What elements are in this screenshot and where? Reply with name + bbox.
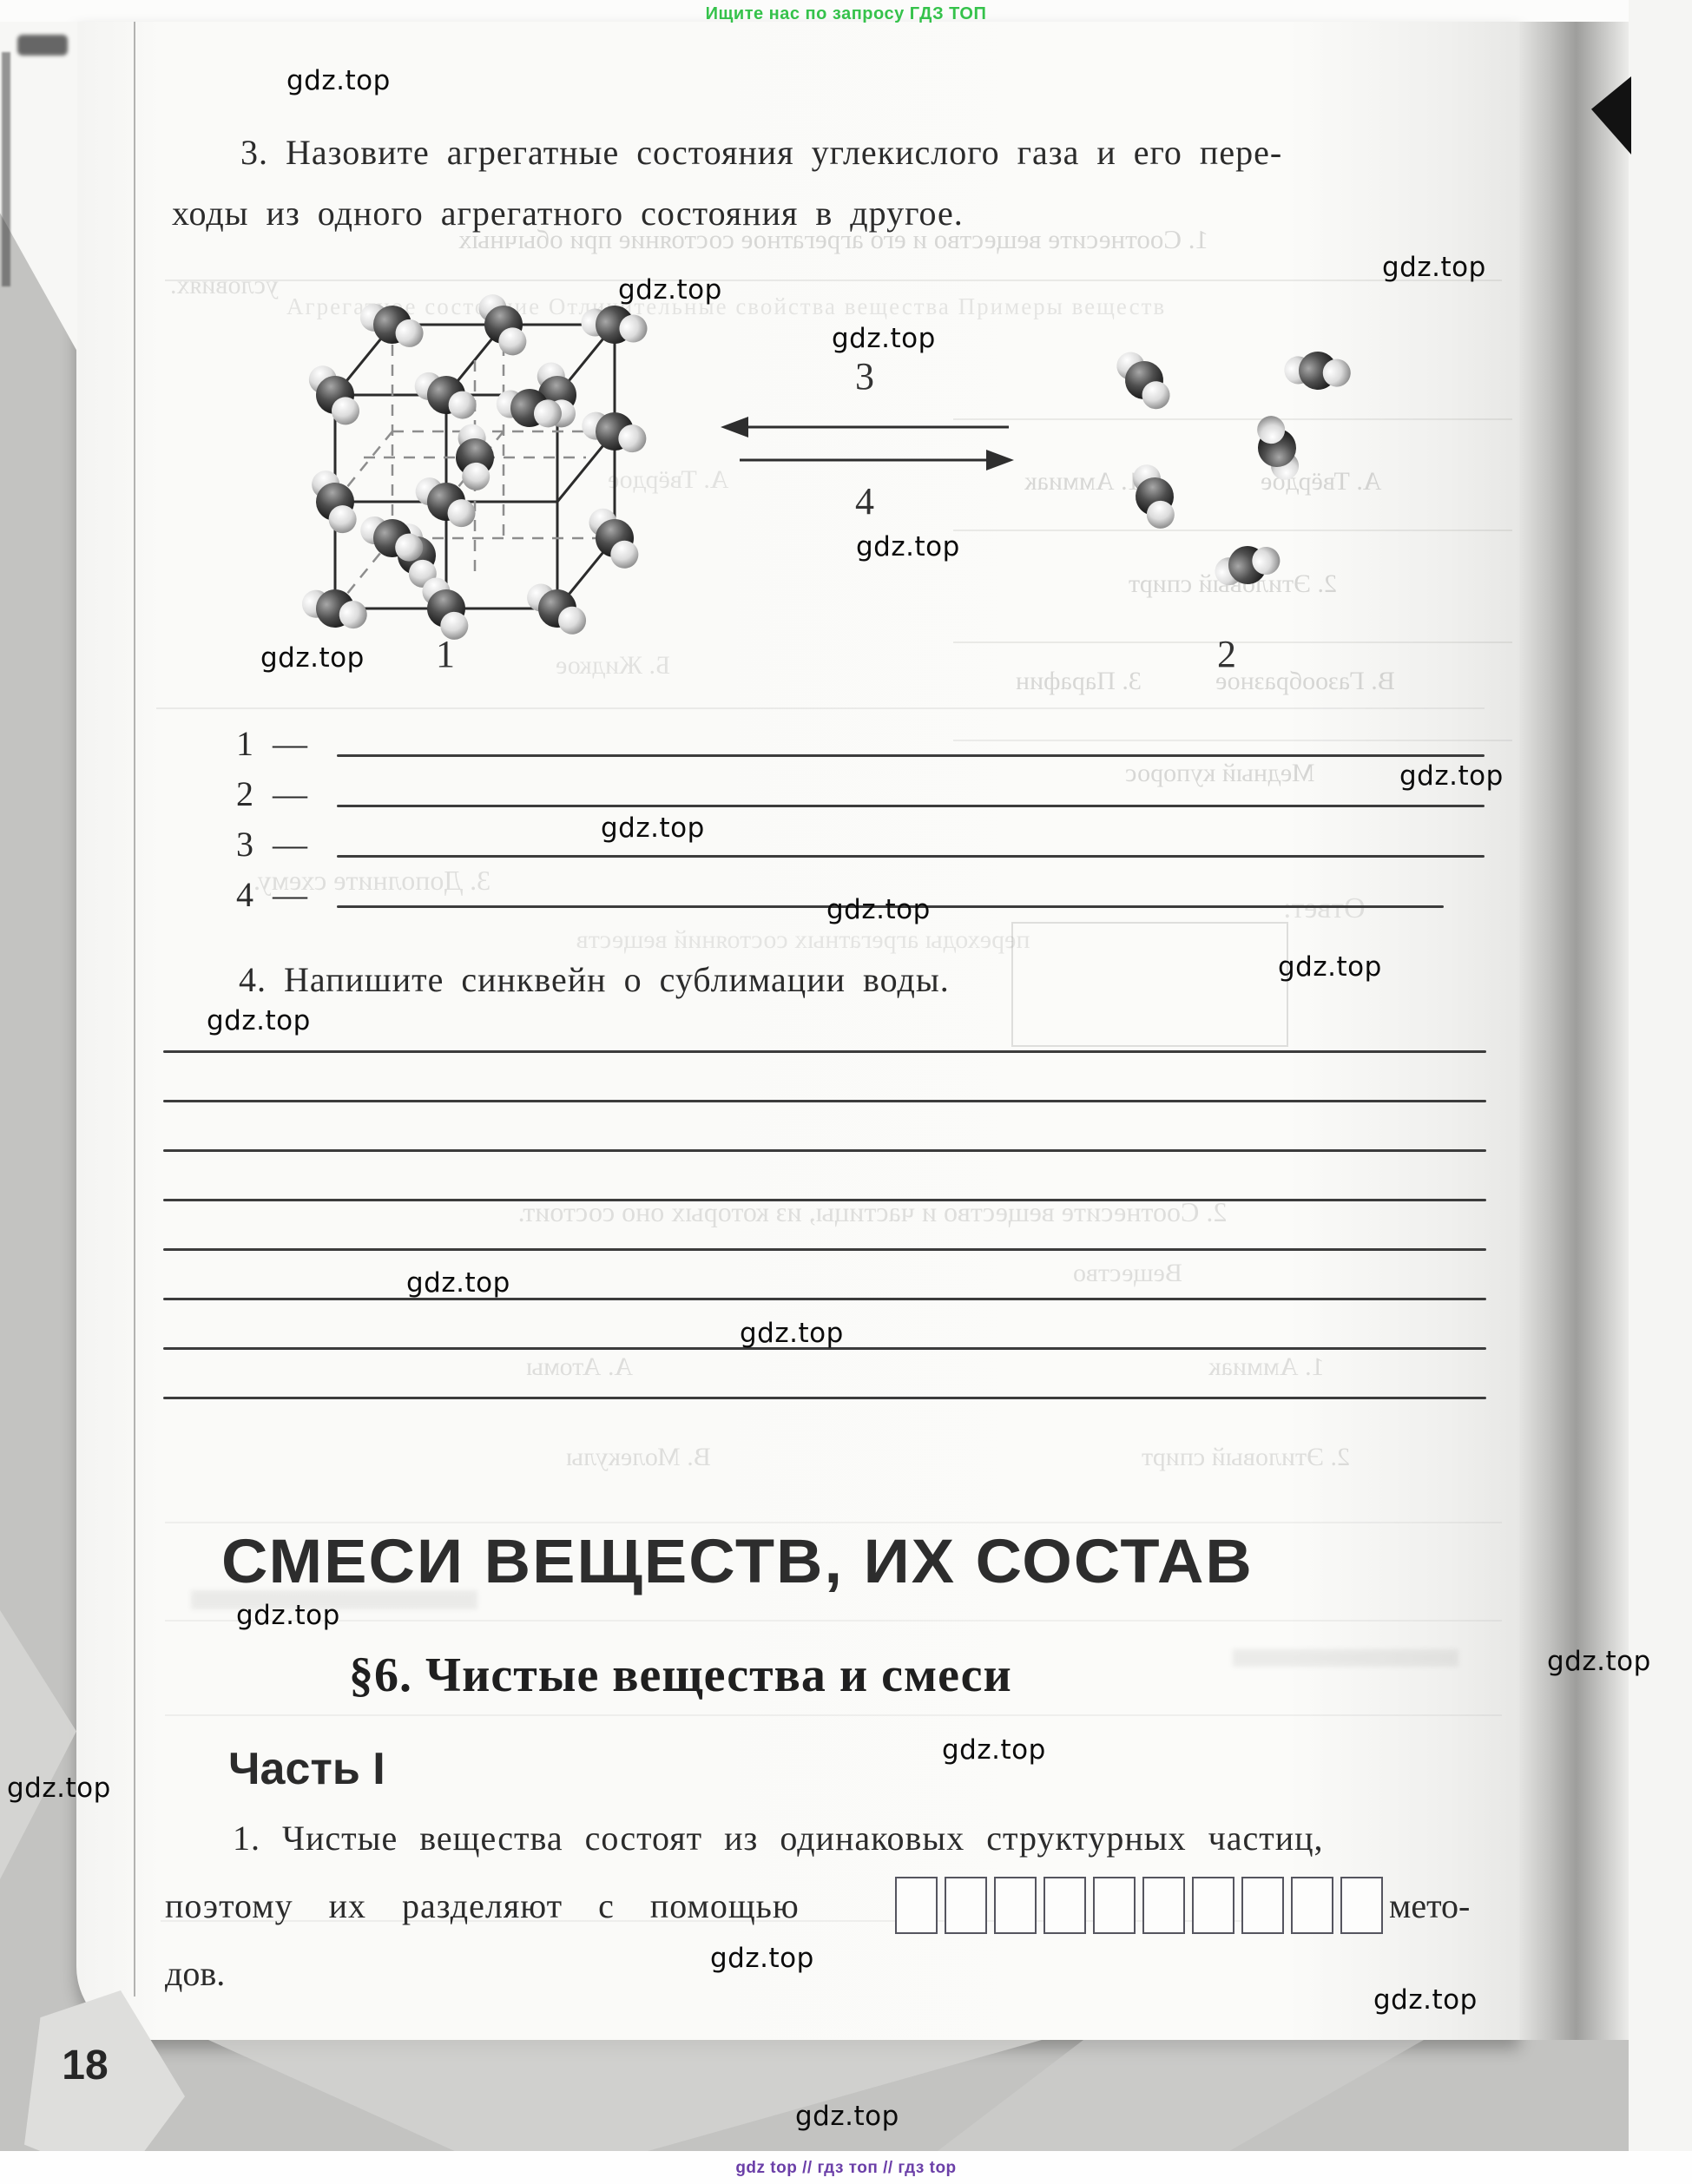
- bleed-rule: [165, 1714, 1502, 1716]
- letter-cell: [1093, 1877, 1136, 1934]
- bleed-text: Ответ:: [1283, 892, 1366, 925]
- writing-line: [163, 1397, 1486, 1399]
- bleed-text: А. Атомы: [526, 1352, 633, 1382]
- gdz-watermark: gdz.top: [826, 894, 931, 925]
- letter-cell: [1291, 1877, 1333, 1934]
- gdz-watermark: gdz.top: [260, 642, 365, 674]
- bleed-rule: [165, 280, 1502, 281]
- task1-line3: дов.: [165, 1953, 225, 1994]
- gdz-watermark: gdz.top: [740, 1318, 844, 1349]
- writing-line: [163, 1298, 1486, 1300]
- scanned-workbook-page: Ищите нас по запросу ГДЗ ТОП 1. Соотнеси…: [0, 0, 1692, 2184]
- bleed-text: 2. Этиловый спирт: [1142, 1443, 1350, 1472]
- scan-smudge: [17, 35, 68, 56]
- bleed-text: В. Молекулы: [566, 1443, 711, 1472]
- answer-number-1: 1 —: [236, 723, 313, 764]
- scan-glare-shape: [938, 2040, 1424, 2151]
- site-banner-link[interactable]: Ищите нас по запросу ГДЗ ТОП: [0, 4, 1692, 24]
- letter-cell: [1340, 1877, 1383, 1934]
- page-curl-shadow: [1519, 22, 1629, 2040]
- letter-cells: [895, 1877, 1383, 1934]
- letter-cell: [1241, 1877, 1284, 1934]
- answer-number-3: 3 —: [236, 824, 313, 865]
- gdz-watermark: gdz.top: [7, 1773, 111, 1804]
- answer-line-3: [337, 855, 1485, 858]
- gdz-watermark: gdz.top: [856, 531, 960, 562]
- gdz-watermark: gdz.top: [406, 1267, 510, 1299]
- writing-line: [163, 1248, 1486, 1251]
- letter-cell: [1142, 1877, 1185, 1934]
- task3-line1: 3. Назовите агрегатные состояния углекис…: [240, 132, 1282, 173]
- gdz-watermark: gdz.top: [710, 1943, 814, 1974]
- bleed-rule: [156, 707, 1485, 709]
- gdz-watermark: gdz.top: [236, 1600, 340, 1631]
- right-scan-strip: [1629, 0, 1692, 2184]
- bleed-rule: [165, 1620, 1502, 1622]
- gdz-watermark: gdz.top: [1278, 951, 1382, 983]
- letter-cell: [1044, 1877, 1086, 1934]
- task1-line2-end: мето-: [1389, 1885, 1470, 1926]
- task3-line2: ходы из одного агрегатного состояния в д…: [172, 193, 964, 234]
- gas-label: 2: [1217, 632, 1236, 676]
- transition-arrows: [721, 417, 1014, 470]
- gdz-watermark: gdz.top: [618, 274, 722, 306]
- page-margin-line: [134, 22, 135, 1997]
- scan-edge-artifact: [2, 52, 10, 286]
- letter-cell: [945, 1877, 987, 1934]
- answer-number-4: 4 —: [236, 874, 313, 915]
- writing-line: [163, 1050, 1486, 1053]
- task1-line2-start: поэтому их разделяют с помощью: [165, 1885, 800, 1926]
- task1-line1: 1. Чистые вещества состоят из одинаковых…: [233, 1818, 1324, 1858]
- letter-cell: [1192, 1877, 1234, 1934]
- letter-cell: [994, 1877, 1037, 1934]
- answer-line-1: [337, 754, 1485, 757]
- bleed-text: 1. Аммиак: [1208, 1352, 1325, 1382]
- footer-links[interactable]: gdz top // гдз топ // гдз top: [0, 2159, 1692, 2178]
- crystal-label: 1: [436, 632, 455, 676]
- bleed-text: Вещество: [1073, 1259, 1182, 1288]
- bleed-text: условиях.: [170, 271, 279, 300]
- paragraph-title: §6. Чистые вещества и смеси: [349, 1648, 1012, 1703]
- writing-line: [163, 1199, 1486, 1201]
- writing-line: [163, 1100, 1486, 1102]
- gdz-watermark: gdz.top: [1382, 252, 1486, 283]
- task4-text: 4. Напишите синквейн о сублимации воды.: [239, 959, 950, 1000]
- gdz-watermark: gdz.top: [1547, 1646, 1651, 1677]
- gas-molecules: [1113, 332, 1356, 603]
- bleed-rule: [165, 1522, 1502, 1523]
- page-number: 18: [54, 2042, 116, 2089]
- scan-glare-shape: [208, 2040, 1042, 2153]
- part-label: Часть I: [228, 1743, 385, 1795]
- gdz-watermark: gdz.top: [207, 1005, 311, 1036]
- answer-number-2: 2 —: [236, 773, 313, 814]
- bleed-smear: [1233, 1649, 1458, 1667]
- gdz-watermark: gdz.top: [1399, 760, 1504, 792]
- letter-cell: [895, 1877, 938, 1934]
- arrow-up-label: 3: [855, 354, 874, 398]
- gdz-watermark: gdz.top: [942, 1734, 1046, 1766]
- answer-line-2: [337, 805, 1485, 807]
- gdz-watermark: gdz.top: [286, 65, 391, 96]
- bleed-text: переходы агрегатных состояний веществ: [386, 925, 1220, 955]
- paper-page-top-left: [0, 22, 77, 352]
- writing-line: [163, 1149, 1486, 1152]
- gdz-watermark: gdz.top: [1373, 1984, 1478, 2016]
- bleed-rule: [953, 740, 1512, 741]
- arrow-down-label: 4: [855, 479, 874, 523]
- chapter-title: СМЕСИ ВЕЩЕСТВ, ИХ СОСТАВ: [221, 1525, 1254, 1596]
- gdz-watermark: gdz.top: [601, 812, 705, 844]
- bleed-text: Медный купорос: [1125, 759, 1315, 788]
- scan-glare-shape: [0, 1610, 76, 1879]
- gdz-watermark: gdz.top: [832, 323, 936, 354]
- gdz-watermark: gdz.top: [795, 2101, 899, 2132]
